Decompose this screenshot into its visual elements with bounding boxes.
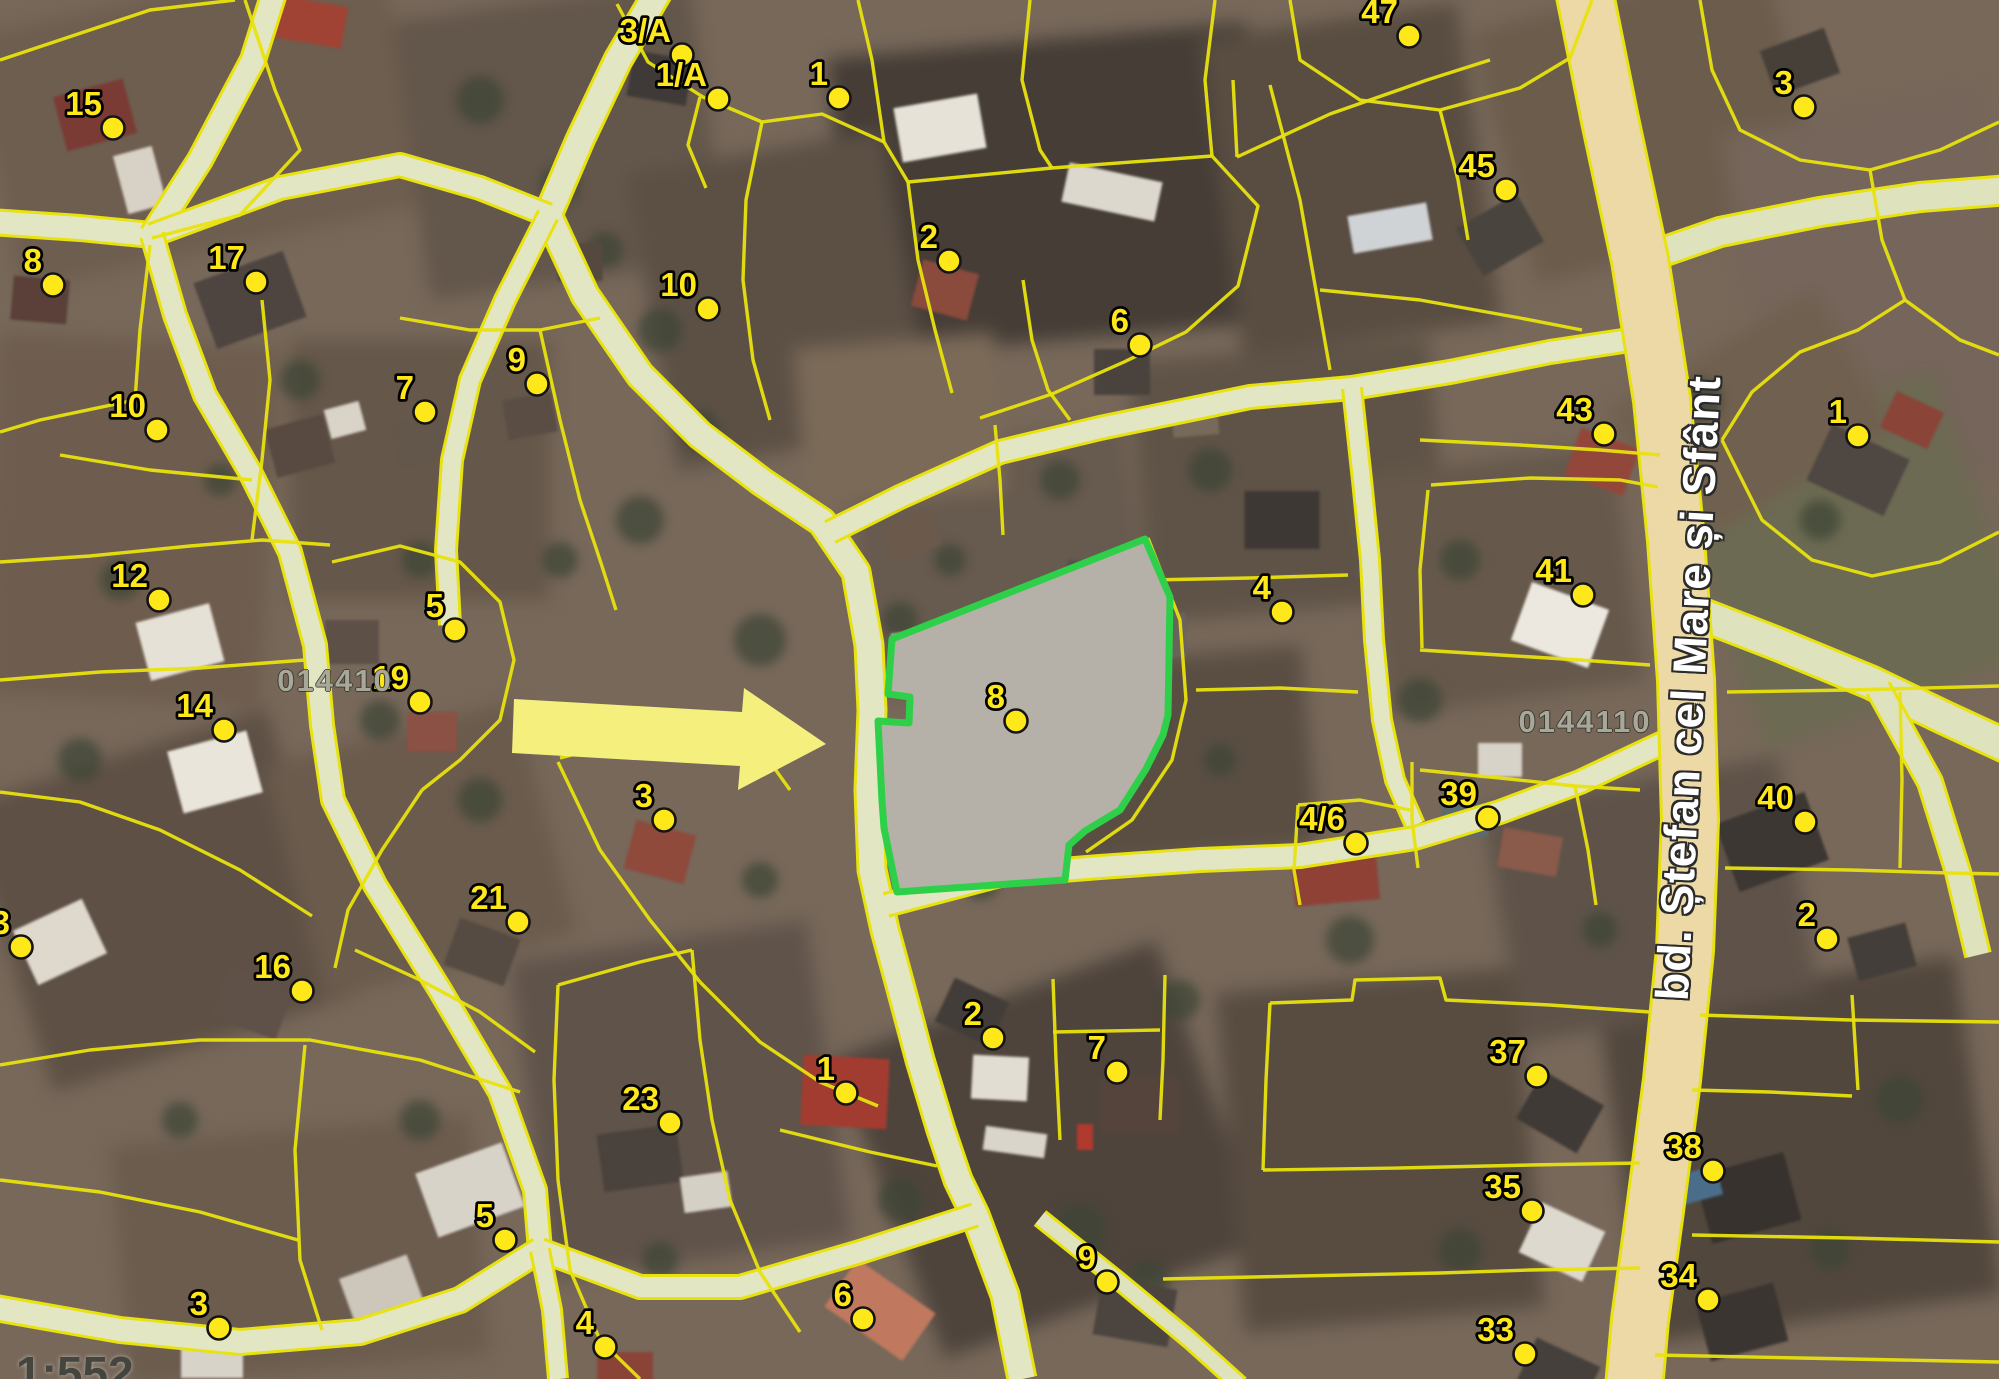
- marker-label: 35: [1484, 1168, 1521, 1205]
- marker-dot[interactable]: [1514, 1343, 1537, 1366]
- tree: [456, 76, 504, 124]
- marker-label: 1: [810, 55, 828, 92]
- tree: [934, 544, 966, 576]
- marker-dot[interactable]: [444, 619, 467, 642]
- marker-label: 37: [1489, 1033, 1526, 1070]
- map-svg: 158171012143/A1/A12109751964734543141483…: [0, 0, 1999, 1379]
- marker-label: 39: [1440, 775, 1477, 812]
- marker-label: 2: [964, 995, 982, 1032]
- marker-dot[interactable]: [208, 1317, 231, 1340]
- marker-label: 4: [576, 1304, 595, 1341]
- marker-dot[interactable]: [148, 589, 171, 612]
- building: [502, 392, 558, 440]
- marker-label: 8: [24, 242, 42, 279]
- marker-label: 9: [1078, 1239, 1096, 1276]
- marker-dot[interactable]: [1005, 710, 1028, 733]
- marker-dot[interactable]: [102, 117, 125, 140]
- tree: [1582, 912, 1618, 948]
- field-patch: [509, 921, 851, 1280]
- marker-label: 8: [987, 678, 1005, 715]
- map-canvas[interactable]: 158171012143/A1/A12109751964734543141483…: [0, 0, 1999, 1379]
- marker-dot[interactable]: [526, 373, 549, 396]
- marker-dot[interactable]: [146, 419, 169, 442]
- marker-label: 1: [817, 1050, 835, 1087]
- marker-label: 41: [1535, 552, 1572, 589]
- marker-label: 6: [1111, 302, 1129, 339]
- marker-dot[interactable]: [1793, 96, 1816, 119]
- marker-label: 23: [622, 1080, 659, 1117]
- building: [407, 712, 457, 752]
- marker-label: 7: [1088, 1029, 1106, 1066]
- tree: [616, 496, 664, 544]
- tree: [1040, 460, 1080, 500]
- marker-label: 9: [508, 341, 526, 378]
- marker-dot[interactable]: [1129, 334, 1152, 357]
- marker-label: 3: [1775, 64, 1793, 101]
- tree: [878, 1178, 922, 1222]
- marker-dot[interactable]: [1593, 423, 1616, 446]
- building: [971, 1055, 1029, 1102]
- tree: [458, 778, 502, 822]
- marker-dot[interactable]: [697, 298, 720, 321]
- tree: [542, 542, 578, 578]
- marker-dot[interactable]: [707, 88, 730, 111]
- marker-label: 33: [1477, 1311, 1514, 1348]
- tree: [360, 700, 400, 740]
- marker-label: 12: [111, 557, 148, 594]
- marker-label: 3: [635, 777, 653, 814]
- marker-dot[interactable]: [594, 1336, 617, 1359]
- marker-dot[interactable]: [494, 1229, 517, 1252]
- marker-label: 10: [660, 266, 697, 303]
- marker-label: 2: [1798, 896, 1816, 933]
- marker-dot[interactable]: [213, 719, 236, 742]
- marker-label: 2: [920, 218, 938, 255]
- marker-dot[interactable]: [291, 980, 314, 1003]
- marker-dot[interactable]: [659, 1112, 682, 1135]
- tree: [734, 614, 786, 666]
- marker-label: 15: [65, 85, 102, 122]
- marker-dot[interactable]: [828, 87, 851, 110]
- tree: [1188, 448, 1232, 492]
- marker-dot[interactable]: [852, 1308, 875, 1331]
- tree: [400, 1100, 440, 1140]
- tree: [162, 1102, 198, 1138]
- marker-dot[interactable]: [1702, 1160, 1725, 1183]
- field-patch: [793, 332, 1006, 509]
- marker-label: 19: [372, 659, 409, 696]
- marker-label: 16: [254, 948, 291, 985]
- parcel-line: [1900, 692, 1902, 868]
- marker-dot[interactable]: [653, 809, 676, 832]
- marker-label: 40: [1757, 779, 1794, 816]
- marker-dot[interactable]: [1106, 1061, 1129, 1084]
- marker-label: 47: [1361, 0, 1398, 30]
- marker-label: 6: [834, 1276, 852, 1313]
- marker-label: 38: [1665, 1128, 1702, 1165]
- marker-label: 34: [1660, 1257, 1697, 1294]
- marker-label: 43: [1556, 391, 1593, 428]
- marker-label: 10: [109, 387, 146, 424]
- marker-dot[interactable]: [1794, 811, 1817, 834]
- marker-label: 1: [1829, 393, 1847, 430]
- tree: [280, 360, 320, 400]
- marker-dot[interactable]: [1477, 807, 1500, 830]
- marker-dot[interactable]: [1697, 1289, 1720, 1312]
- tree: [742, 862, 778, 898]
- marker-label: 7: [396, 369, 414, 406]
- marker-dot[interactable]: [42, 274, 65, 297]
- marker-dot[interactable]: [938, 250, 961, 273]
- marker-label: 5: [426, 587, 444, 624]
- tree: [58, 738, 102, 782]
- marker-dot[interactable]: [414, 401, 437, 424]
- marker-dot[interactable]: [1345, 832, 1368, 855]
- building: [1077, 1124, 1093, 1150]
- marker-dot[interactable]: [1816, 928, 1839, 951]
- marker-dot[interactable]: [409, 691, 432, 714]
- marker-label: 1/A: [656, 56, 707, 93]
- marker-dot[interactable]: [1521, 1200, 1544, 1223]
- marker-dot[interactable]: [1526, 1065, 1549, 1088]
- marker-label: 4: [1253, 569, 1272, 606]
- building: [325, 620, 379, 664]
- marker-dot[interactable]: [1398, 25, 1421, 48]
- parcel-line: [1053, 1030, 1160, 1032]
- tree: [204, 464, 236, 496]
- marker-label: 3: [0, 904, 10, 941]
- road-village: [0, 222, 152, 235]
- tree: [1398, 678, 1442, 722]
- marker-dot[interactable]: [10, 936, 33, 959]
- marker-dot[interactable]: [1495, 179, 1518, 202]
- field-patch: [1199, 3, 1501, 356]
- marker-label: 14: [176, 687, 213, 724]
- marker-dot[interactable]: [507, 911, 530, 934]
- tree: [1438, 1228, 1482, 1272]
- building: [1100, 1076, 1180, 1134]
- marker-dot[interactable]: [1847, 425, 1870, 448]
- tree: [1326, 916, 1374, 964]
- marker-label: 45: [1458, 147, 1495, 184]
- marker-dot[interactable]: [982, 1027, 1005, 1050]
- building: [1478, 743, 1522, 777]
- tree: [1204, 744, 1236, 776]
- building: [394, 418, 446, 465]
- marker-dot[interactable]: [835, 1082, 858, 1105]
- marker-label: 3/A: [620, 12, 671, 49]
- tree: [638, 308, 682, 352]
- marker-dot[interactable]: [1096, 1271, 1119, 1294]
- marker-dot[interactable]: [1572, 584, 1595, 607]
- marker-label: 17: [208, 239, 245, 276]
- marker-label: 3: [190, 1285, 208, 1322]
- building: [1245, 491, 1320, 549]
- tree: [1440, 540, 1480, 580]
- marker-label: 21: [470, 879, 507, 916]
- marker-label: 4/6: [1299, 800, 1345, 837]
- tree: [1800, 500, 1840, 540]
- marker-dot[interactable]: [245, 271, 268, 294]
- tree: [1876, 1076, 1924, 1124]
- marker-label: 5: [476, 1197, 494, 1234]
- marker-dot[interactable]: [1271, 601, 1294, 624]
- tree: [642, 1242, 678, 1278]
